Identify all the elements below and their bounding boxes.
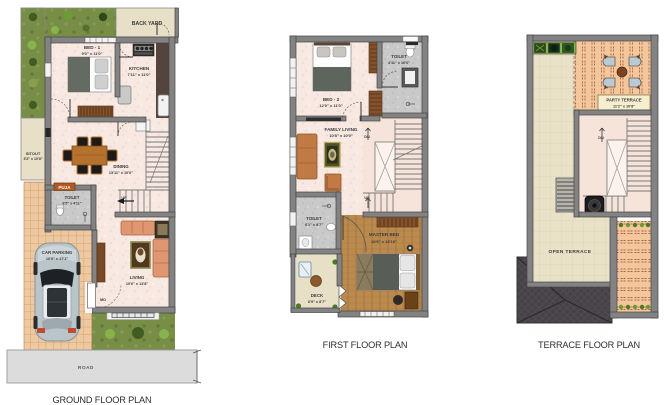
svg-text:FIRST FLOOR PLAN: FIRST FLOOR PLAN xyxy=(323,340,408,350)
svg-text:11'2" x 10'8": 11'2" x 10'8" xyxy=(613,105,635,109)
svg-text:DN: DN xyxy=(598,136,604,140)
svg-text:ROAD: ROAD xyxy=(78,365,94,370)
svg-text:OPEN TERRACE: OPEN TERRACE xyxy=(549,249,592,255)
svg-text:PARTY TERRACE: PARTY TERRACE xyxy=(606,98,641,103)
svg-text:CAR PARKING: CAR PARKING xyxy=(42,250,73,255)
svg-text:10'6" x 13'10": 10'6" x 13'10" xyxy=(371,239,397,244)
svg-text:BACK YARD: BACK YARD xyxy=(132,21,163,27)
svg-text:10'6" x 13'8": 10'6" x 13'8" xyxy=(126,282,148,286)
svg-text:DINING: DINING xyxy=(113,164,129,169)
svg-text:9'0" x 11'0": 9'0" x 11'0" xyxy=(81,51,102,56)
svg-text:LIVING: LIVING xyxy=(130,275,145,280)
svg-text:10'0" x 17'1": 10'0" x 17'1" xyxy=(46,257,68,261)
svg-text:10'8" x 10'0": 10'8" x 10'0" xyxy=(329,133,353,138)
svg-text:DECK: DECK xyxy=(311,293,324,298)
svg-text:6'9" x 8'7": 6'9" x 8'7" xyxy=(308,300,326,304)
svg-text:3'3" x 10'8": 3'3" x 10'8" xyxy=(23,157,42,161)
svg-text:UP: UP xyxy=(364,196,370,200)
svg-text:6'5" x 4'11": 6'5" x 4'11" xyxy=(63,202,82,206)
svg-text:MD: MD xyxy=(100,298,106,302)
svg-text:GROUND FLOOR PLAN: GROUND FLOOR PLAN xyxy=(52,395,151,405)
svg-text:FAMILY LIVING: FAMILY LIVING xyxy=(325,127,358,132)
svg-text:KITCHEN: KITCHEN xyxy=(129,66,150,71)
svg-text:MASTER BED: MASTER BED xyxy=(369,232,400,237)
svg-text:4'11" x 10'6": 4'11" x 10'6" xyxy=(388,61,410,65)
svg-text:DN: DN xyxy=(364,135,370,139)
svg-text:6'1" x 8'7": 6'1" x 8'7" xyxy=(305,223,323,227)
svg-text:BED - 1: BED - 1 xyxy=(84,45,101,50)
svg-text:SITOUT: SITOUT xyxy=(26,151,41,156)
svg-text:13'11" x 10'0": 13'11" x 10'0" xyxy=(109,171,133,175)
svg-text:PUJA: PUJA xyxy=(58,185,71,190)
svg-text:7'11" x 11'0": 7'11" x 11'0" xyxy=(127,72,150,77)
svg-text:TERRACE FLOOR PLAN: TERRACE FLOOR PLAN xyxy=(538,340,640,350)
svg-text:TOILET: TOILET xyxy=(65,195,80,200)
svg-text:UP: UP xyxy=(121,196,127,200)
svg-text:BED - 2: BED - 2 xyxy=(323,97,340,102)
svg-text:12'0" x 11'0": 12'0" x 11'0" xyxy=(319,103,342,108)
svg-text:TOILET: TOILET xyxy=(391,54,407,59)
svg-text:TOILET: TOILET xyxy=(306,216,322,221)
